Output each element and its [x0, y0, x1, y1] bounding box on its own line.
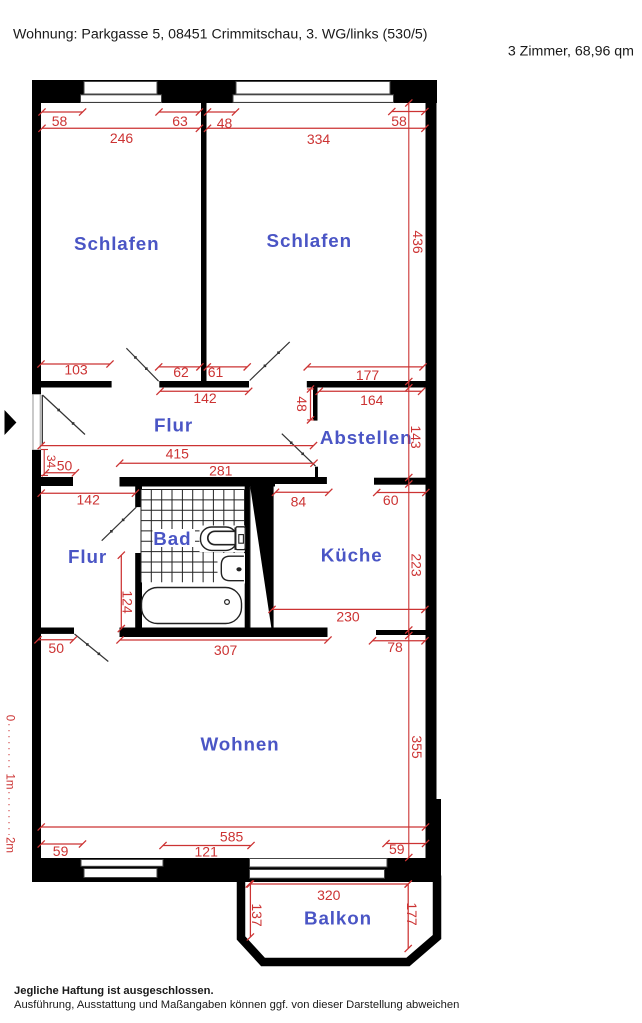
svg-text:61: 61	[208, 364, 224, 380]
svg-text:142: 142	[193, 390, 217, 406]
svg-text:143: 143	[408, 425, 424, 449]
svg-text:307: 307	[214, 642, 238, 658]
svg-text:124: 124	[120, 590, 136, 614]
svg-text:84: 84	[291, 494, 307, 510]
svg-text:355: 355	[409, 735, 425, 759]
svg-text:137: 137	[249, 903, 265, 927]
svg-text:Küche: Küche	[321, 545, 383, 566]
svg-text:58: 58	[52, 113, 68, 129]
svg-text:48: 48	[294, 396, 310, 412]
svg-text:334: 334	[307, 131, 331, 147]
svg-text:320: 320	[317, 887, 341, 903]
svg-text:3 Zimmer, 68,96 qm: 3 Zimmer, 68,96 qm	[508, 44, 634, 60]
svg-text:246: 246	[110, 130, 134, 146]
svg-text:281: 281	[209, 463, 233, 479]
svg-text:59: 59	[389, 841, 405, 857]
svg-text:121: 121	[195, 844, 219, 860]
svg-text:Ausführung, Ausstattung und Ma: Ausführung, Ausstattung und Maßangaben k…	[14, 999, 459, 1011]
svg-text:415: 415	[166, 446, 190, 462]
svg-text:Schlafen: Schlafen	[267, 230, 352, 251]
svg-text:62: 62	[173, 364, 189, 380]
svg-text:Bad: Bad	[153, 528, 191, 549]
svg-text:0: 0	[4, 715, 16, 721]
svg-text:Balkon: Balkon	[304, 908, 372, 929]
svg-text:59: 59	[53, 843, 69, 859]
svg-text:142: 142	[77, 492, 101, 508]
svg-text:585: 585	[220, 829, 244, 845]
svg-text:Wohnung: Parkgasse 5, 08451 Cr: Wohnung: Parkgasse 5, 08451 Crimmitschau…	[13, 27, 428, 43]
svg-text:230: 230	[336, 609, 360, 625]
svg-text:Jegliche Haftung ist ausgeschl: Jegliche Haftung ist ausgeschlossen.	[14, 985, 214, 997]
svg-text:Flur: Flur	[154, 415, 193, 436]
svg-text:50: 50	[48, 640, 64, 656]
svg-text:Wohnen: Wohnen	[200, 734, 279, 755]
svg-text:Abstellen: Abstellen	[320, 427, 413, 448]
svg-text:63: 63	[172, 113, 188, 129]
svg-text:103: 103	[64, 362, 88, 378]
svg-text:Flur: Flur	[68, 546, 107, 567]
svg-text:164: 164	[360, 392, 384, 408]
svg-text:177: 177	[356, 367, 380, 383]
svg-text:2m: 2m	[4, 837, 16, 853]
svg-text:177: 177	[404, 902, 420, 926]
svg-text:58: 58	[391, 113, 407, 129]
svg-text:60: 60	[383, 492, 399, 508]
svg-text:1m: 1m	[4, 774, 16, 790]
svg-text:78: 78	[387, 639, 403, 655]
svg-text:Schlafen: Schlafen	[74, 233, 159, 254]
svg-text:50: 50	[57, 458, 73, 474]
svg-text:223: 223	[409, 553, 425, 577]
svg-text:436: 436	[410, 230, 426, 254]
